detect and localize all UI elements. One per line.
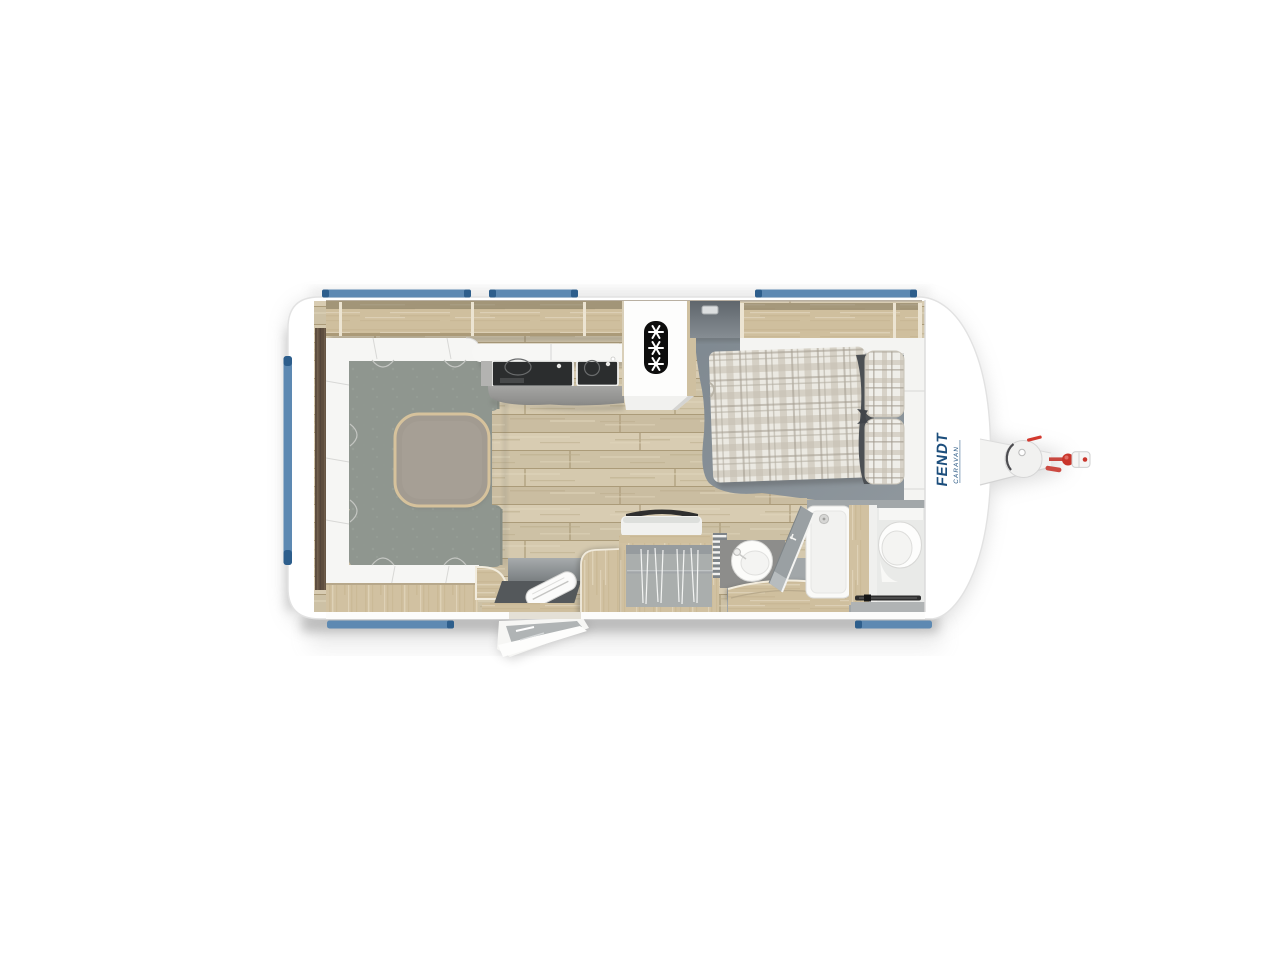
svg-text:CARAVAN: CARAVAN	[953, 445, 960, 484]
svg-text:FENDT: FENDT	[934, 431, 951, 487]
